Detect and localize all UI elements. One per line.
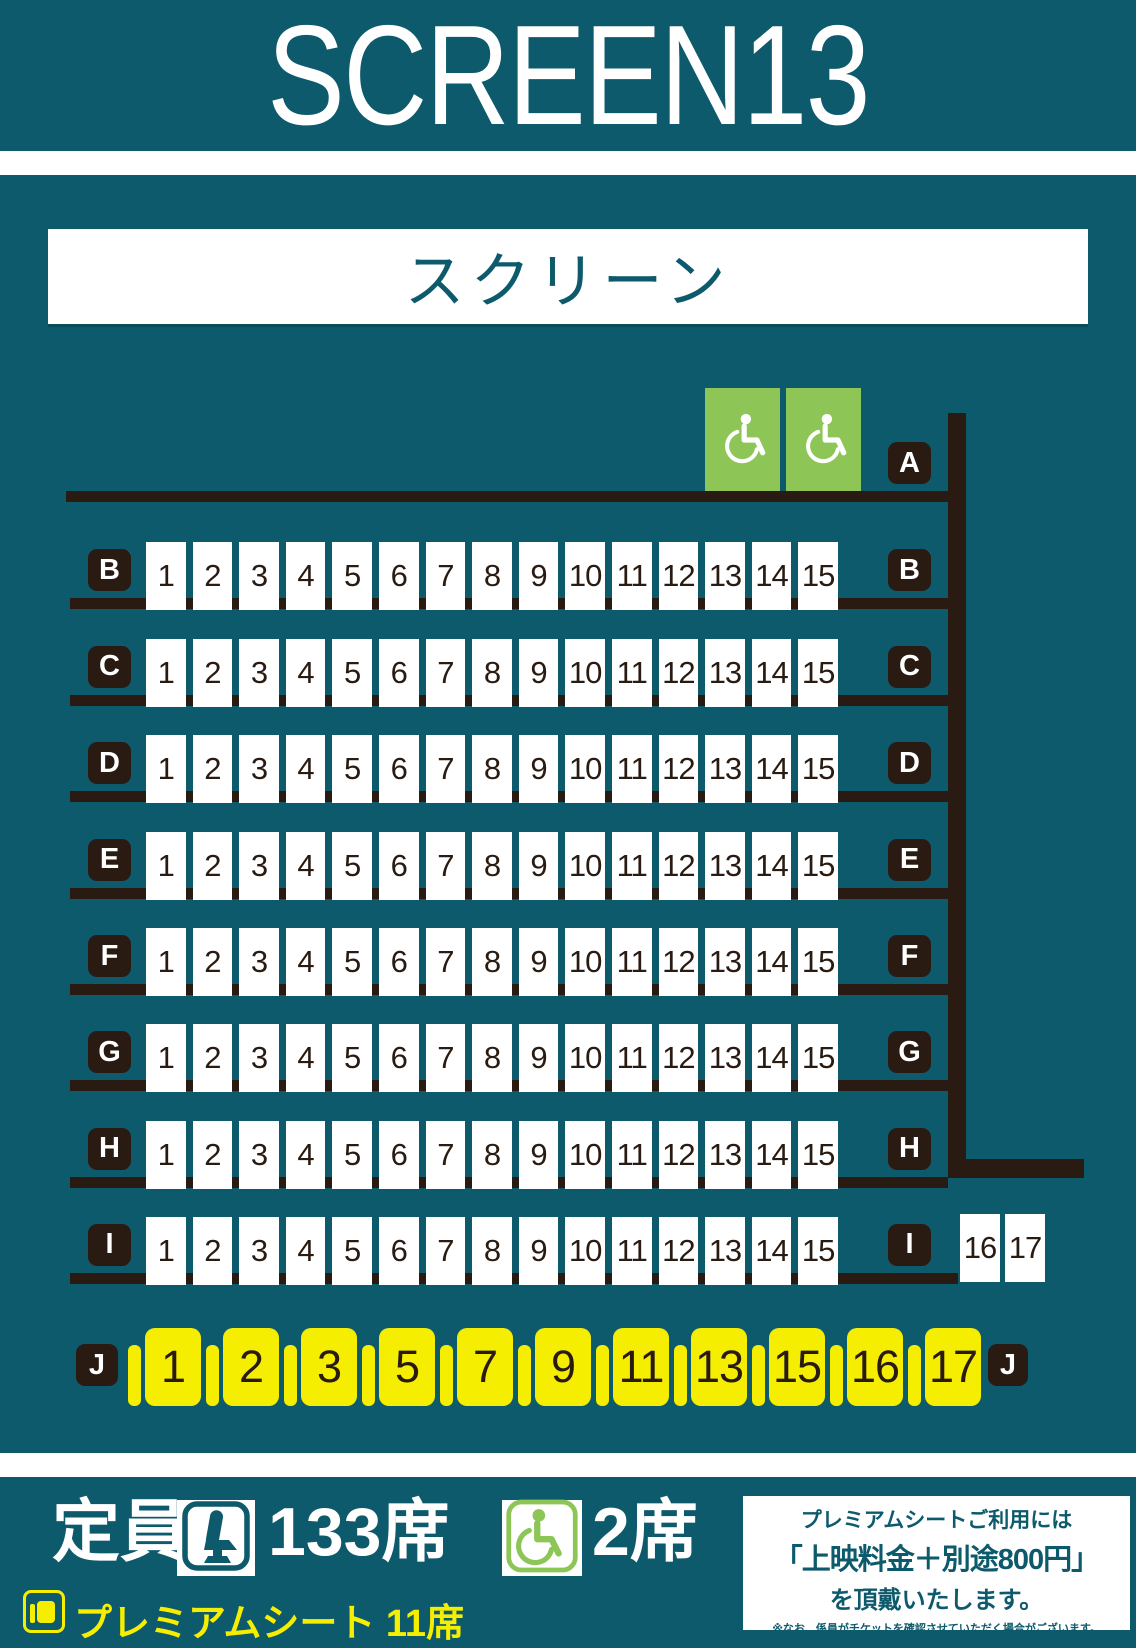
seat-G-15[interactable]: 15	[798, 1024, 838, 1092]
wheelchair-icon	[502, 1498, 582, 1579]
premium-armrest	[518, 1345, 531, 1406]
premium-fee-notice: プレミアムシートご利用には 「上映料金＋別途800円」 を頂戴いたします。 ※な…	[743, 1496, 1130, 1630]
seat-G-11[interactable]: 11	[612, 1024, 652, 1092]
seat-B-1[interactable]: 1	[146, 542, 186, 610]
wheelchair-icon	[714, 405, 772, 475]
seat-count-iconbox	[177, 1500, 255, 1576]
wheelchair-seat-A-2[interactable]	[786, 388, 861, 491]
seat-F-4[interactable]: 4	[286, 928, 326, 996]
seat-E-14[interactable]: 14	[752, 832, 792, 900]
header-divider	[0, 151, 1136, 175]
seat-C-9[interactable]: 9	[519, 639, 559, 707]
seat-B-12[interactable]: 12	[659, 542, 699, 610]
row-label-I-left: I	[88, 1224, 131, 1266]
seat-B-14[interactable]: 14	[752, 542, 792, 610]
seat-G-12[interactable]: 12	[659, 1024, 699, 1092]
seat-D-15[interactable]: 15	[798, 735, 838, 803]
seat-I-9[interactable]: 9	[519, 1217, 559, 1285]
premium-armrest	[908, 1345, 921, 1406]
seat-F-13[interactable]: 13	[705, 928, 745, 996]
row-label-B-left: B	[88, 549, 131, 591]
screen13-seat-map-page: SCREEN13 スクリーン AB123456789101112131415BC…	[0, 0, 1136, 1648]
notice-line3: を頂戴いたします。	[743, 1580, 1130, 1615]
premium-armrest	[128, 1345, 141, 1406]
seat-E-13[interactable]: 13	[705, 832, 745, 900]
premium-seat-J-9[interactable]: 9	[535, 1328, 591, 1406]
seat-I-4[interactable]: 4	[286, 1217, 326, 1285]
seat-E-11[interactable]: 11	[612, 832, 652, 900]
row-label-F-left: F	[88, 935, 131, 977]
seat-E-3[interactable]: 3	[239, 832, 279, 900]
seat-H-11[interactable]: 11	[612, 1121, 652, 1189]
seat-E-10[interactable]: 10	[565, 832, 605, 900]
seat-C-12[interactable]: 12	[659, 639, 699, 707]
premium-armrest	[674, 1345, 687, 1406]
premium-seat-J-16[interactable]: 16	[847, 1328, 903, 1406]
seat-H-5[interactable]: 5	[332, 1121, 372, 1189]
seat-G-13[interactable]: 13	[705, 1024, 745, 1092]
seat-D-9[interactable]: 9	[519, 735, 559, 803]
seat-D-8[interactable]: 8	[472, 735, 512, 803]
premium-seat-J-17[interactable]: 17	[925, 1328, 981, 1406]
seat-D-2[interactable]: 2	[193, 735, 233, 803]
seat-I-14[interactable]: 14	[752, 1217, 792, 1285]
row-label-H-right: H	[888, 1128, 931, 1170]
premium-seat-J-1[interactable]: 1	[145, 1328, 201, 1406]
seat-E-7[interactable]: 7	[426, 832, 466, 900]
wheelchair-icon	[795, 405, 853, 475]
seat-I-7[interactable]: 7	[426, 1217, 466, 1285]
notice-line1: プレミアムシートご利用には	[743, 1504, 1130, 1534]
premium-icon-square	[37, 1601, 55, 1623]
premium-seat-legend-icon	[23, 1590, 65, 1633]
seat-F-8[interactable]: 8	[472, 928, 512, 996]
premium-armrest	[284, 1345, 297, 1406]
seat-C-5[interactable]: 5	[332, 639, 372, 707]
seat-F-10[interactable]: 10	[565, 928, 605, 996]
seat-B-3[interactable]: 3	[239, 542, 279, 610]
seat-I-11[interactable]: 11	[612, 1217, 652, 1285]
seat-E-12[interactable]: 12	[659, 832, 699, 900]
premium-seat-J-11[interactable]: 11	[613, 1328, 669, 1406]
seat-B-2[interactable]: 2	[193, 542, 233, 610]
seat-B-6[interactable]: 6	[379, 542, 419, 610]
seat-H-7[interactable]: 7	[426, 1121, 466, 1189]
seat-I-13[interactable]: 13	[705, 1217, 745, 1285]
seat-D-11[interactable]: 11	[612, 735, 652, 803]
seat-I-2[interactable]: 2	[193, 1217, 233, 1285]
seat-F-5[interactable]: 5	[332, 928, 372, 996]
seat-C-2[interactable]: 2	[193, 639, 233, 707]
row-label-E-left: E	[88, 839, 131, 881]
seat-B-13[interactable]: 13	[705, 542, 745, 610]
seat-B-5[interactable]: 5	[332, 542, 372, 610]
seat-C-14[interactable]: 14	[752, 639, 792, 707]
row-line-A	[66, 491, 948, 502]
premium-armrest	[440, 1345, 453, 1406]
seat-E-15[interactable]: 15	[798, 832, 838, 900]
seat-I-12[interactable]: 12	[659, 1217, 699, 1285]
row-label-G-left: G	[88, 1031, 131, 1073]
seat-I-16[interactable]: 16	[960, 1214, 1000, 1282]
seat-G-1[interactable]: 1	[146, 1024, 186, 1092]
row-label-C-left: C	[88, 646, 131, 688]
screen-label: スクリーン	[405, 233, 732, 320]
seat-H-13[interactable]: 13	[705, 1121, 745, 1189]
row-label-F-right: F	[888, 935, 931, 977]
premium-armrest	[752, 1345, 765, 1406]
seat-H-6[interactable]: 6	[379, 1121, 419, 1189]
seat-E-6[interactable]: 6	[379, 832, 419, 900]
seat-H-10[interactable]: 10	[565, 1121, 605, 1189]
seat-C-15[interactable]: 15	[798, 639, 838, 707]
notice-line2: 「上映料金＋別途800円」	[743, 1536, 1130, 1578]
seat-H-8[interactable]: 8	[472, 1121, 512, 1189]
premium-seat-legend-label: プレミアムシート 11席	[74, 1592, 464, 1647]
seat-C-4[interactable]: 4	[286, 639, 326, 707]
seat-I-6[interactable]: 6	[379, 1217, 419, 1285]
seat-B-10[interactable]: 10	[565, 542, 605, 610]
seat-B-9[interactable]: 9	[519, 542, 559, 610]
seat-I-1[interactable]: 1	[146, 1217, 186, 1285]
seat-F-12[interactable]: 12	[659, 928, 699, 996]
seat-I-10[interactable]: 10	[565, 1217, 605, 1285]
seat-C-3[interactable]: 3	[239, 639, 279, 707]
seat-C-10[interactable]: 10	[565, 639, 605, 707]
premium-seat-J-3[interactable]: 3	[301, 1328, 357, 1406]
seat-H-14[interactable]: 14	[752, 1121, 792, 1189]
seat-I-17[interactable]: 17	[1005, 1214, 1045, 1282]
seat-H-3[interactable]: 3	[239, 1121, 279, 1189]
seat-I-3[interactable]: 3	[239, 1217, 279, 1285]
seat-G-6[interactable]: 6	[379, 1024, 419, 1092]
seat-B-15[interactable]: 15	[798, 542, 838, 610]
seat-F-14[interactable]: 14	[752, 928, 792, 996]
seat-D-3[interactable]: 3	[239, 735, 279, 803]
seat-H-12[interactable]: 12	[659, 1121, 699, 1189]
seat-D-10[interactable]: 10	[565, 735, 605, 803]
seat-F-2[interactable]: 2	[193, 928, 233, 996]
row-label-D-left: D	[88, 742, 131, 784]
seat-B-7[interactable]: 7	[426, 542, 466, 610]
seat-H-1[interactable]: 1	[146, 1121, 186, 1189]
seat-count: 133席	[268, 1494, 449, 1570]
premium-seat-J-13[interactable]: 13	[691, 1328, 747, 1406]
seat-F-3[interactable]: 3	[239, 928, 279, 996]
wheelchair-count: 2席	[592, 1494, 698, 1570]
seat-I-8[interactable]: 8	[472, 1217, 512, 1285]
premium-armrest	[206, 1345, 219, 1406]
seat-B-8[interactable]: 8	[472, 542, 512, 610]
seat-C-11[interactable]: 11	[612, 639, 652, 707]
premium-armrest	[830, 1345, 843, 1406]
wheelchair-seat-A-1[interactable]	[705, 388, 780, 491]
seat-E-1[interactable]: 1	[146, 832, 186, 900]
seat-D-1[interactable]: 1	[146, 735, 186, 803]
right-wall-vertical	[948, 413, 966, 1178]
seat-F-1[interactable]: 1	[146, 928, 186, 996]
seat-C-7[interactable]: 7	[426, 639, 466, 707]
page-title: SCREEN13	[102, 0, 1034, 151]
right-wall-horizontal	[948, 1159, 1084, 1178]
seat-G-5[interactable]: 5	[332, 1024, 372, 1092]
row-label-J-left: J	[76, 1344, 118, 1386]
seat-E-5[interactable]: 5	[332, 832, 372, 900]
seat-D-13[interactable]: 13	[705, 735, 745, 803]
seat-G-14[interactable]: 14	[752, 1024, 792, 1092]
seat-D-12[interactable]: 12	[659, 735, 699, 803]
premium-seat-J-2[interactable]: 2	[223, 1328, 279, 1406]
premium-seat-J-5[interactable]: 5	[379, 1328, 435, 1406]
seat-I-5[interactable]: 5	[332, 1217, 372, 1285]
row-label-G-right: G	[888, 1031, 931, 1073]
footer-divider	[0, 1453, 1136, 1477]
seat-E-2[interactable]: 2	[193, 832, 233, 900]
seat-D-4[interactable]: 4	[286, 735, 326, 803]
seat-H-15[interactable]: 15	[798, 1121, 838, 1189]
row-label-E-right: E	[888, 839, 931, 881]
premium-seat-J-7[interactable]: 7	[457, 1328, 513, 1406]
wheelchair-count-iconbox	[502, 1500, 582, 1576]
seat-G-4[interactable]: 4	[286, 1024, 326, 1092]
seat-G-10[interactable]: 10	[565, 1024, 605, 1092]
seat-C-8[interactable]: 8	[472, 639, 512, 707]
seat-H-9[interactable]: 9	[519, 1121, 559, 1189]
seat-F-15[interactable]: 15	[798, 928, 838, 996]
seat-E-8[interactable]: 8	[472, 832, 512, 900]
seat-D-5[interactable]: 5	[332, 735, 372, 803]
seat-E-4[interactable]: 4	[286, 832, 326, 900]
seat-C-1[interactable]: 1	[146, 639, 186, 707]
seat-C-6[interactable]: 6	[379, 639, 419, 707]
row-label-J-right: J	[988, 1344, 1028, 1386]
seat-H-2[interactable]: 2	[193, 1121, 233, 1189]
seat-G-9[interactable]: 9	[519, 1024, 559, 1092]
row-label-I-right: I	[888, 1224, 931, 1266]
seat-F-9[interactable]: 9	[519, 928, 559, 996]
premium-seat-J-15[interactable]: 15	[769, 1328, 825, 1406]
notice-note2: ご了承くださいますようお願いいたします。	[743, 1636, 1130, 1648]
screen-indicator: スクリーン	[48, 229, 1088, 324]
premium-armrest	[596, 1345, 609, 1406]
row-label-C-right: C	[888, 646, 931, 688]
seat-G-8[interactable]: 8	[472, 1024, 512, 1092]
row-label-B-right: B	[888, 549, 931, 591]
row-label-H-left: H	[88, 1128, 131, 1170]
seat-G-2[interactable]: 2	[193, 1024, 233, 1092]
seat-G-3[interactable]: 3	[239, 1024, 279, 1092]
seat-F-7[interactable]: 7	[426, 928, 466, 996]
seat-I-15[interactable]: 15	[798, 1217, 838, 1285]
seat-F-6[interactable]: 6	[379, 928, 419, 996]
seat-G-7[interactable]: 7	[426, 1024, 466, 1092]
row-label-A-right: A	[888, 442, 931, 484]
row-label-D-right: D	[888, 742, 931, 784]
seat-F-11[interactable]: 11	[612, 928, 652, 996]
premium-armrest	[362, 1345, 375, 1406]
premium-icon-strip	[30, 1604, 35, 1623]
capacity-label: 定員	[52, 1494, 188, 1570]
seat-D-14[interactable]: 14	[752, 735, 792, 803]
seat-H-4[interactable]: 4	[286, 1121, 326, 1189]
seat-E-9[interactable]: 9	[519, 832, 559, 900]
seat-icon	[177, 1498, 255, 1579]
notice-note1: ※なお、係員がチケットを確認させていただく場合がございます。	[743, 1620, 1130, 1636]
seat-D-7[interactable]: 7	[426, 735, 466, 803]
seat-C-13[interactable]: 13	[705, 639, 745, 707]
seat-B-4[interactable]: 4	[286, 542, 326, 610]
seat-B-11[interactable]: 11	[612, 542, 652, 610]
seat-D-6[interactable]: 6	[379, 735, 419, 803]
